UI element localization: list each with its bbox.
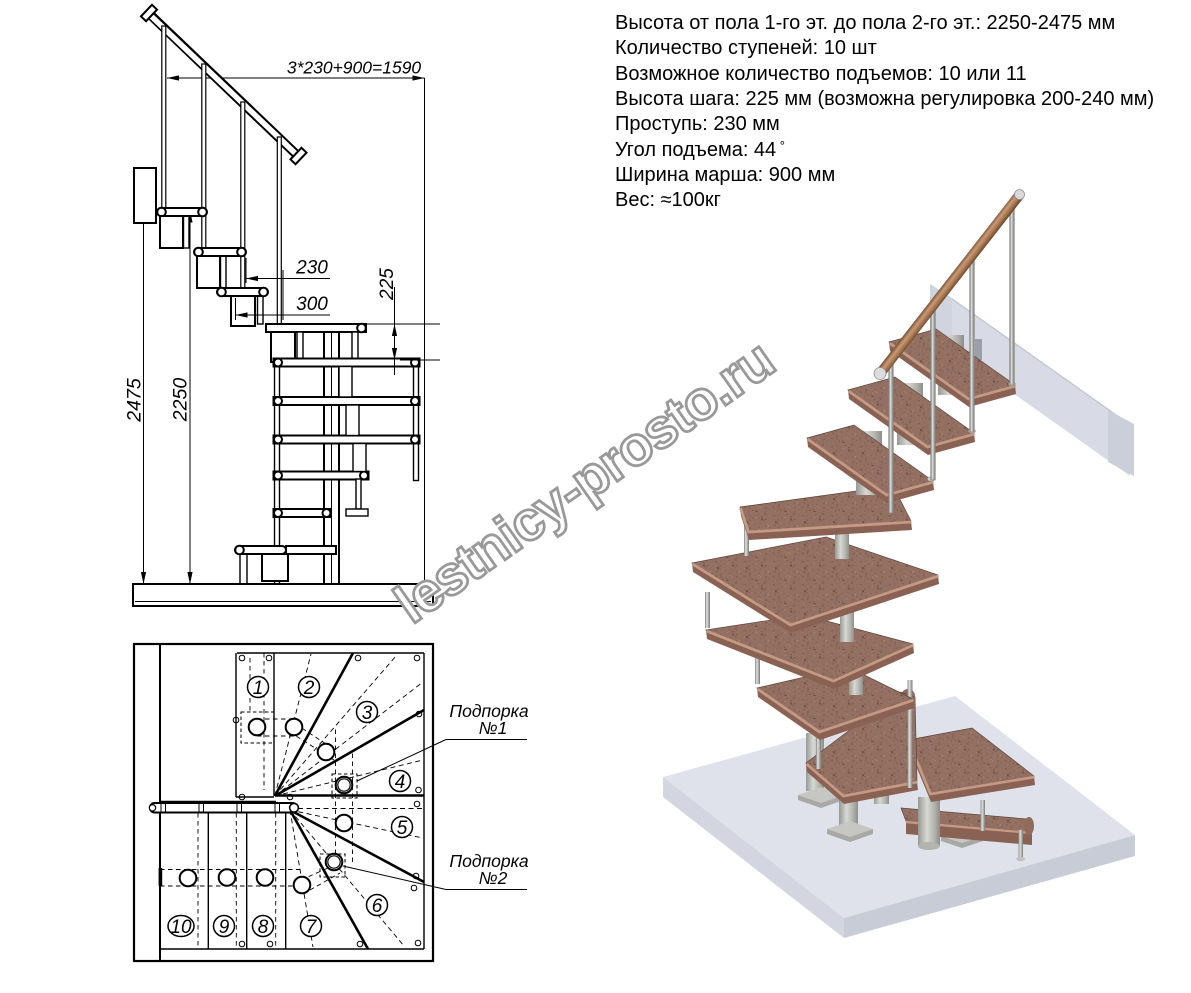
svg-text:3*230+900=1590: 3*230+900=1590 bbox=[287, 58, 422, 78]
svg-text:Количество ступеней: 10 шт: Количество ступеней: 10 шт bbox=[615, 37, 877, 59]
svg-text:8: 8 bbox=[258, 917, 269, 938]
svg-text:225: 225 bbox=[377, 268, 398, 301]
svg-text:Проступь: 230 мм: Проступь: 230 мм bbox=[615, 113, 780, 135]
svg-text:230: 230 bbox=[295, 258, 328, 279]
svg-text:9: 9 bbox=[219, 917, 230, 938]
svg-text:1: 1 bbox=[253, 678, 264, 699]
svg-text:300: 300 bbox=[296, 294, 328, 315]
svg-text:2: 2 bbox=[303, 678, 315, 699]
svg-text:6: 6 bbox=[372, 896, 383, 917]
svg-text:5: 5 bbox=[397, 818, 408, 839]
svg-text:Вес: ≈100кг: Вес: ≈100кг bbox=[615, 189, 721, 211]
svg-text:2250: 2250 bbox=[170, 378, 192, 423]
svg-text:2475: 2475 bbox=[124, 378, 146, 423]
svg-text:Высота от пола 1-го эт. до пол: Высота от пола 1-го эт. до пола 2-го эт.… bbox=[615, 12, 1115, 34]
svg-text:Высота шага: 225 мм (возможна: Высота шага: 225 мм (возможна регулировк… bbox=[615, 88, 1154, 110]
svg-text:7: 7 bbox=[306, 917, 318, 938]
svg-text:Угол подъема: 44 °: Угол подъема: 44 ° bbox=[615, 138, 785, 161]
svg-text:№2: №2 bbox=[479, 868, 508, 888]
svg-text:Ширина марша: 900 мм: Ширина марша: 900 мм bbox=[615, 164, 835, 186]
svg-text:3: 3 bbox=[362, 703, 373, 724]
svg-text:10: 10 bbox=[170, 917, 192, 938]
svg-text:4: 4 bbox=[395, 772, 406, 793]
svg-text:Возможное количество подъемов:: Возможное количество подъемов: 10 или 11 bbox=[615, 63, 1027, 85]
svg-text:№1: №1 bbox=[479, 718, 508, 738]
